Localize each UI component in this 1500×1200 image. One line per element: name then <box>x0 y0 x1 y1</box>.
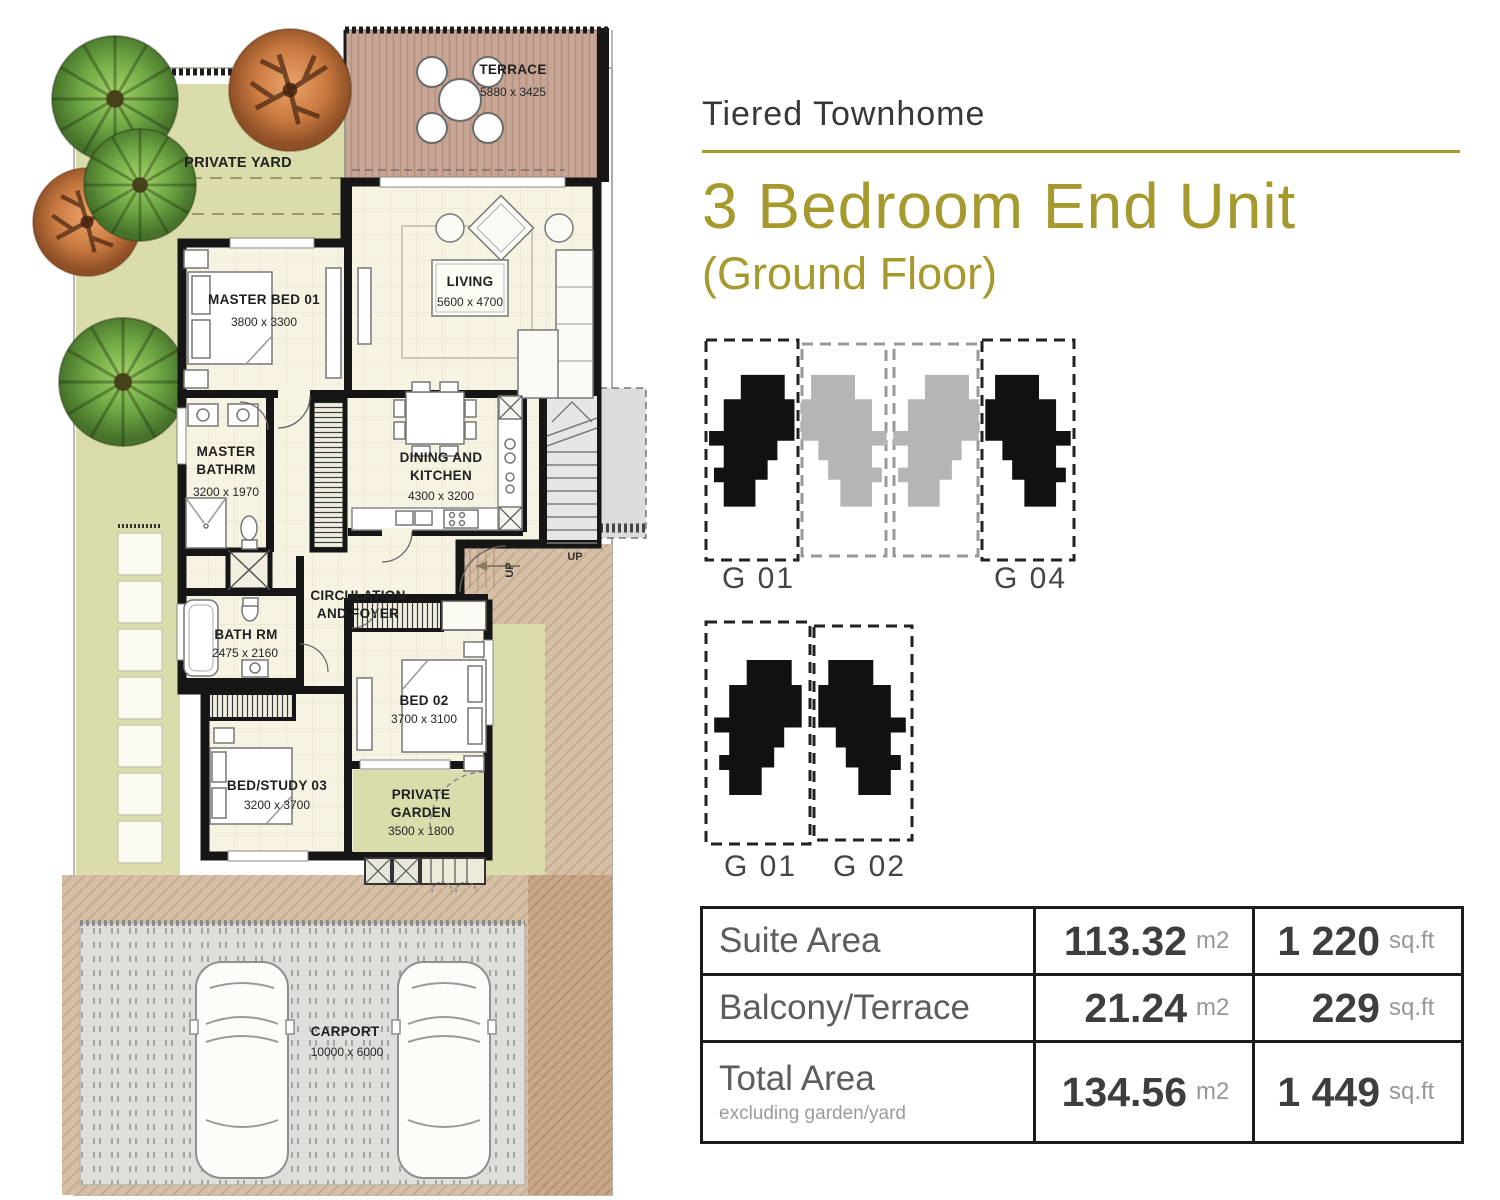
row-sqft-cell: 1 220 sq.ft <box>1252 909 1461 973</box>
bath-dims: 2475 x 2160 <box>212 646 278 660</box>
bed2-label: BED 02 <box>399 693 448 708</box>
m2-unit: m2 <box>1196 927 1240 955</box>
table-row: Total Area excluding garden/yard 134.56 … <box>703 1040 1461 1141</box>
area-table: Suite Area 113.32 m2 1 220 sq.ft Balcony… <box>700 906 1464 1144</box>
plan-title: 3 Bedroom End Unit <box>702 173 1460 240</box>
carport-dims: 10000 x 6000 <box>311 1045 384 1059</box>
m2-value: 113.32 <box>1064 918 1187 965</box>
private-yard-label: PRIVATE YARD <box>184 155 292 171</box>
car-icon <box>190 962 294 1178</box>
unit-label-g01: G 01 <box>722 562 795 592</box>
sqft-value: 1 220 <box>1277 918 1380 965</box>
stairs: UP <box>547 396 597 563</box>
garden-label-1: PRIVATE <box>392 787 451 802</box>
unit-label-g02: G 02 <box>833 850 906 883</box>
plan-subtitle: Tiered Townhome <box>702 95 1460 134</box>
unit-shape-icon <box>709 375 1071 507</box>
sqft-value: 1 449 <box>1277 1069 1380 1116</box>
entry-up-label: UP <box>504 562 516 577</box>
unit-locator-row1: G 01 G 04 <box>700 330 1100 592</box>
master-bath-dims: 3200 x 1970 <box>193 485 259 499</box>
row-sqft-cell: 1 449 sq.ft <box>1252 1043 1461 1141</box>
bed3-dims: 3200 x 3700 <box>244 798 310 812</box>
m2-unit: m2 <box>1196 1078 1240 1106</box>
sqft-unit: sq.ft <box>1389 994 1449 1022</box>
bed2-dims: 3700 x 3100 <box>391 712 457 726</box>
dining-label-1: DINING AND <box>400 450 483 465</box>
unit-label-g01b: G 01 <box>724 850 797 883</box>
row-label: Suite Area <box>703 909 1033 973</box>
garden-label-2: GARDEN <box>391 805 451 820</box>
master-bath-label-1: MASTER <box>197 444 256 459</box>
sqft-unit: sq.ft <box>1389 927 1449 955</box>
master-bed-dims: 3800 x 3300 <box>231 315 297 329</box>
bed3-label: BED/STUDY 03 <box>227 778 327 793</box>
row-sqft-cell: 229 sq.ft <box>1252 976 1461 1040</box>
row-m2-cell: 21.24 m2 <box>1033 976 1252 1040</box>
dining-dims: 4300 x 3200 <box>408 489 474 503</box>
master-bath-label-2: BATHRM <box>196 462 255 477</box>
row-m2-cell: 113.32 m2 <box>1033 909 1252 973</box>
gold-divider <box>702 150 1460 153</box>
roof-overhang <box>600 388 646 538</box>
sqft-value: 229 <box>1312 985 1380 1032</box>
carport-label: CARPORT <box>311 1024 380 1039</box>
row-label: Total Area excluding garden/yard <box>703 1043 1033 1141</box>
terrace-dims: 5880 x 3425 <box>480 85 546 99</box>
bath-label: BATH RM <box>214 627 277 642</box>
total-area-label: Total Area <box>719 1059 875 1099</box>
garden-dims: 3500 x 1800 <box>388 824 454 838</box>
table-row: Suite Area 113.32 m2 1 220 sq.ft <box>703 909 1461 973</box>
car-icon <box>392 962 496 1178</box>
page: TERRACE 5880 x 3425 PRIVATE YARD <box>0 0 1500 1200</box>
carport-area: CARPORT 10000 x 6000 <box>80 923 525 1185</box>
m2-value: 134.56 <box>1062 1069 1187 1116</box>
circulation-label-1: CIRCULATION <box>310 588 405 603</box>
title-block: Tiered Townhome 3 Bedroom End Unit (Grou… <box>702 95 1460 300</box>
terrace-label: TERRACE <box>479 62 546 77</box>
living-dims: 5600 x 4700 <box>437 295 503 309</box>
row-m2-cell: 134.56 m2 <box>1033 1043 1252 1141</box>
stairs-up-label: UP <box>567 551 582 563</box>
plan-title-2: (Ground Floor) <box>702 248 1460 300</box>
dining-label-2: KITCHEN <box>410 468 472 483</box>
m2-value: 21.24 <box>1084 985 1187 1032</box>
total-area-note: excluding garden/yard <box>719 1103 906 1125</box>
circulation-label-2: AND FOYER <box>317 606 399 621</box>
master-bed-label: MASTER BED 01 <box>208 292 320 307</box>
living-label: LIVING <box>447 274 494 289</box>
row-label: Balcony/Terrace <box>703 976 1033 1040</box>
unit-label-g04: G 04 <box>994 562 1067 592</box>
sqft-unit: sq.ft <box>1389 1078 1449 1106</box>
floor-plan: TERRACE 5880 x 3425 PRIVATE YARD <box>0 0 650 1200</box>
m2-unit: m2 <box>1196 994 1240 1022</box>
unit-locator-row2: G 01 G 02 <box>700 615 935 890</box>
table-row: Balcony/Terrace 21.24 m2 229 sq.ft <box>703 973 1461 1040</box>
